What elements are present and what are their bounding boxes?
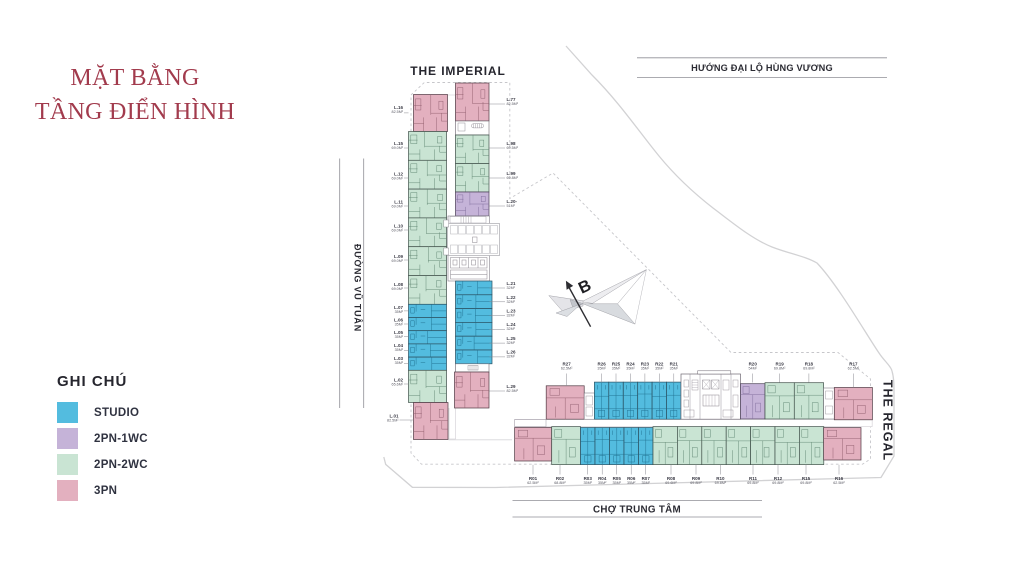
svg-text:51M²: 51M² [507, 204, 516, 208]
svg-text:82.5M²: 82.5M² [387, 419, 399, 423]
svg-text:32M²: 32M² [507, 286, 516, 290]
svg-text:62.5M²: 62.5M² [848, 367, 860, 371]
svg-text:69.0M²: 69.0M² [392, 205, 404, 209]
svg-text:35M²: 35M² [598, 481, 607, 485]
svg-text:35M²: 35M² [583, 481, 592, 485]
svg-text:69.5M²: 69.5M² [507, 146, 519, 150]
svg-text:69.6M²: 69.6M² [665, 481, 677, 485]
svg-text:35M²: 35M² [612, 367, 621, 371]
svg-text:35M²: 35M² [670, 367, 679, 371]
svg-text:35M²: 35M² [395, 335, 404, 339]
svg-text:69.0M²: 69.0M² [392, 259, 404, 263]
svg-text:69.0M²: 69.0M² [392, 177, 404, 181]
svg-text:35M²: 35M² [395, 348, 404, 352]
svg-text:69.0M²: 69.0M² [392, 146, 404, 150]
svg-text:THE IMPERIAL: THE IMPERIAL [410, 64, 505, 78]
svg-text:69.8M²: 69.8M² [690, 481, 702, 485]
svg-text:69.0M²: 69.0M² [392, 229, 404, 233]
svg-text:35M²: 35M² [626, 367, 635, 371]
svg-text:69.8M²: 69.8M² [747, 481, 759, 485]
svg-text:32M²: 32M² [507, 355, 516, 359]
svg-text:69.8M²: 69.8M² [774, 367, 786, 371]
svg-text:82.5M²: 82.5M² [507, 389, 519, 393]
svg-text:69.8M²: 69.8M² [772, 481, 784, 485]
svg-text:32M²: 32M² [507, 327, 516, 331]
svg-text:HƯỚNG ĐẠI LỘ HÙNG VƯƠNG: HƯỚNG ĐẠI LỘ HÙNG VƯƠNG [691, 62, 833, 73]
svg-text:35M²: 35M² [597, 367, 606, 371]
svg-text:ĐƯỜNG VŨ TUÂN: ĐƯỜNG VŨ TUÂN [353, 244, 364, 332]
svg-text:35M²: 35M² [627, 481, 636, 485]
svg-text:82.5M²: 82.5M² [392, 110, 404, 114]
svg-text:35M²: 35M² [395, 323, 404, 327]
svg-text:62.5M²: 62.5M² [527, 481, 539, 485]
svg-text:69.8M²: 69.8M² [803, 367, 815, 371]
svg-text:69.8M²: 69.8M² [715, 481, 727, 485]
svg-text:35M²: 35M² [655, 367, 664, 371]
svg-text:32M²: 32M² [507, 341, 516, 345]
svg-text:65.6M²: 65.6M² [392, 383, 404, 387]
svg-text:68.8M²: 68.8M² [554, 481, 566, 485]
svg-text:62.5M²: 62.5M² [561, 367, 573, 371]
svg-text:35M²: 35M² [641, 367, 650, 371]
svg-text:69.8M²: 69.8M² [507, 176, 519, 180]
svg-text:32M²: 32M² [507, 314, 516, 318]
svg-text:35M²: 35M² [612, 481, 621, 485]
svg-text:B: B [576, 276, 594, 297]
svg-text:35M²: 35M² [641, 481, 650, 485]
svg-text:THE REGAL: THE REGAL [881, 380, 895, 461]
svg-text:69.8M²: 69.8M² [800, 481, 812, 485]
svg-text:82.5M²: 82.5M² [507, 102, 519, 106]
svg-text:69.0M²: 69.0M² [392, 287, 404, 291]
svg-text:35M²: 35M² [395, 310, 404, 314]
svg-text:54M²: 54M² [748, 367, 757, 371]
svg-text:62.5M²: 62.5M² [833, 481, 845, 485]
svg-text:32M²: 32M² [507, 300, 516, 304]
svg-text:35M²: 35M² [395, 361, 404, 365]
svg-text:CHỢ TRUNG TÂM: CHỢ TRUNG TÂM [593, 504, 681, 516]
